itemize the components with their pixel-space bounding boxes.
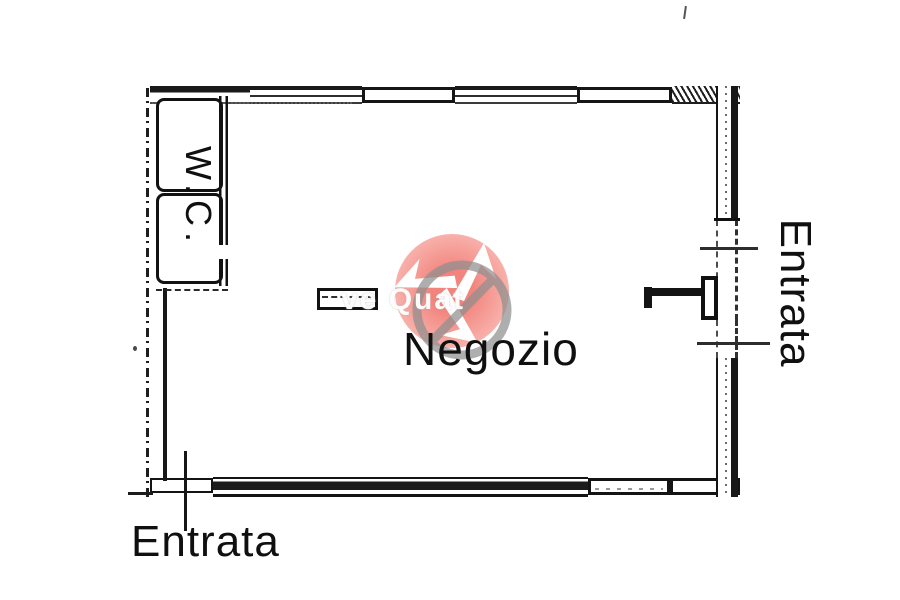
right-wall bbox=[716, 86, 738, 497]
right-wall-upper bbox=[716, 86, 738, 220]
top-window-2-icon bbox=[362, 87, 455, 103]
scan-speckle-top bbox=[683, 6, 687, 19]
entrance-label-bottom: Entrata bbox=[131, 520, 280, 564]
top-window-4-icon bbox=[577, 87, 672, 103]
left-wall-lower bbox=[163, 288, 167, 481]
floor-plan: ve Quat Negozio Entrata Entrata W.C. bbox=[0, 0, 900, 600]
top-window-3-icon bbox=[455, 86, 577, 104]
bottom-wall-left-stub bbox=[128, 492, 153, 495]
right-door-opening-lower bbox=[716, 320, 738, 358]
bottom-door-opening bbox=[150, 478, 213, 493]
watermark-text: ve Quat bbox=[341, 283, 465, 317]
right-wall-lower bbox=[716, 358, 738, 497]
left-boundary-dashdot bbox=[146, 88, 149, 500]
bottom-wall bbox=[150, 477, 740, 497]
wc-partition-door-gap bbox=[218, 245, 229, 259]
right-door-tick-lower bbox=[697, 342, 770, 345]
right-door-opening-upper bbox=[716, 220, 738, 320]
bottom-window-icon bbox=[588, 478, 670, 495]
wc-dashed-bottom bbox=[156, 289, 228, 291]
room-label-negozio: Negozio bbox=[403, 326, 579, 372]
scan-speckle-left bbox=[133, 346, 137, 351]
wc-label: W.C. bbox=[176, 132, 216, 262]
right-door-tick-upper bbox=[700, 247, 758, 250]
right-door-jamb bbox=[701, 276, 718, 320]
right-door-leaf-endcap bbox=[644, 287, 652, 308]
entrance-label-right: Entrata bbox=[771, 208, 817, 378]
bottom-wall-solid bbox=[213, 477, 588, 497]
right-wall-cap bbox=[714, 218, 740, 221]
